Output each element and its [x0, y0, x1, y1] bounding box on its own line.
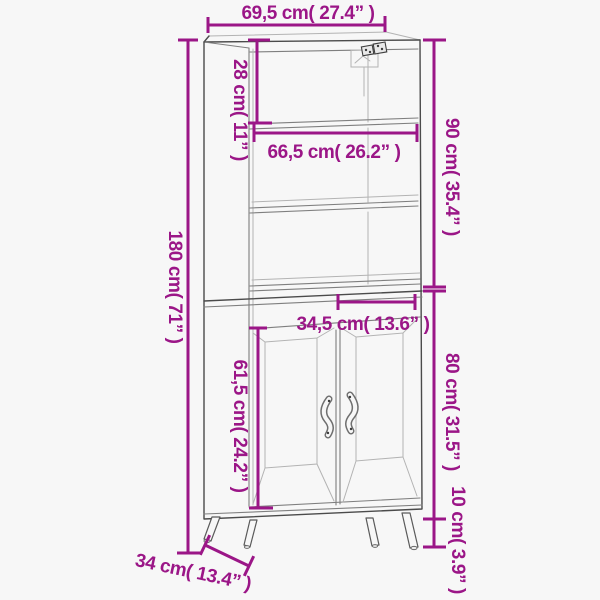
dimension-annotations: 69,5 cm( 27.4” ) 28 cm( 11” ) 90 cm( 35.… [133, 3, 468, 595]
dimension-inner-width-label: 66,5 cm( 26.2” ) [267, 142, 400, 163]
right-door-handle-icon [349, 395, 356, 431]
dimension-lower-unit-label: 80 cm( 31.5” ) [441, 353, 462, 471]
shelf-2 [250, 201, 418, 213]
bracket-plate-left [361, 45, 373, 56]
dimension-door-height: 61,5 cm( 24.2” ) [229, 328, 273, 508]
dimension-line [338, 294, 415, 310]
front-right-foot [411, 546, 417, 549]
dimension-line [423, 519, 446, 547]
bracket-screw-dot [377, 45, 379, 47]
shelf-2-top [252, 195, 418, 202]
dimension-line [254, 124, 417, 142]
dimension-upper-unit-label: 90 cm( 35.4” ) [441, 118, 462, 236]
diagram-canvas: 69,5 cm( 27.4” ) 28 cm( 11” ) 90 cm( 35.… [0, 0, 600, 600]
dimension-depth-label: 34 cm( 13.4” ) [133, 550, 253, 595]
dimension-full-height-label: 180 cm( 71” ) [164, 230, 185, 343]
left-door-handle-icon [324, 399, 331, 435]
front-right-leg [402, 513, 418, 548]
back-right-foot [372, 545, 377, 548]
dimension-door-width-label: 34,5 cm( 13.6” ) [296, 314, 429, 335]
back-left-foot [244, 546, 249, 549]
shelf-3 [250, 279, 420, 291]
shelf-3-top [252, 273, 420, 280]
bracket-plate-right [373, 42, 387, 54]
wall-mount-bracket-icon [351, 42, 387, 96]
shelf-1 [250, 118, 418, 129]
top-back-edge [209, 32, 420, 40]
bracket-screw-dot [381, 48, 383, 50]
dimension-total-width: 69,5 cm( 27.4” ) [208, 3, 385, 33]
bracket-screw-dot [365, 49, 367, 51]
dimension-leg-height-label: 10 cm( 3.9” ) [447, 486, 468, 594]
product-dimension-diagram: 69,5 cm( 27.4” ) 28 cm( 11” ) 90 cm( 35.… [0, 0, 600, 600]
dimension-full-height: 180 cm( 71” ) [164, 40, 202, 553]
handle-screw-dot [328, 400, 330, 402]
door-divider [336, 329, 340, 505]
lower-cabinet-top [204, 291, 422, 301]
back-left-leg [244, 520, 257, 547]
dimension-leg-height: 10 cm( 3.9” ) [423, 486, 468, 594]
dimension-top-section-height: 28 cm( 11” ) [229, 40, 272, 161]
cabinet-top-panel [204, 32, 420, 52]
cabinet-bottom-inner-edge [204, 505, 422, 514]
dimension-top-section-label: 28 cm( 11” ) [229, 59, 250, 161]
dimension-inner-width: 66,5 cm( 26.2” ) [254, 124, 417, 163]
dimension-depth: 34 cm( 13.4” ) [133, 535, 253, 595]
bracket-screw-dot [369, 51, 371, 53]
handle-screw-dot [350, 428, 352, 430]
back-right-leg [366, 518, 379, 546]
front-left-leg [204, 517, 220, 541]
dimension-upper-unit-height: 90 cm( 35.4” ) [423, 40, 462, 287]
handle-screw-dot [349, 396, 351, 398]
top-front-edge [204, 36, 420, 42]
dimension-door-height-label: 61,5 cm( 24.2” ) [229, 359, 250, 492]
handle-screw-dot [327, 432, 329, 434]
cabinet-legs [204, 513, 418, 550]
lower-doors [249, 317, 420, 507]
dimension-total-width-label: 69,5 cm( 27.4” ) [241, 3, 374, 24]
